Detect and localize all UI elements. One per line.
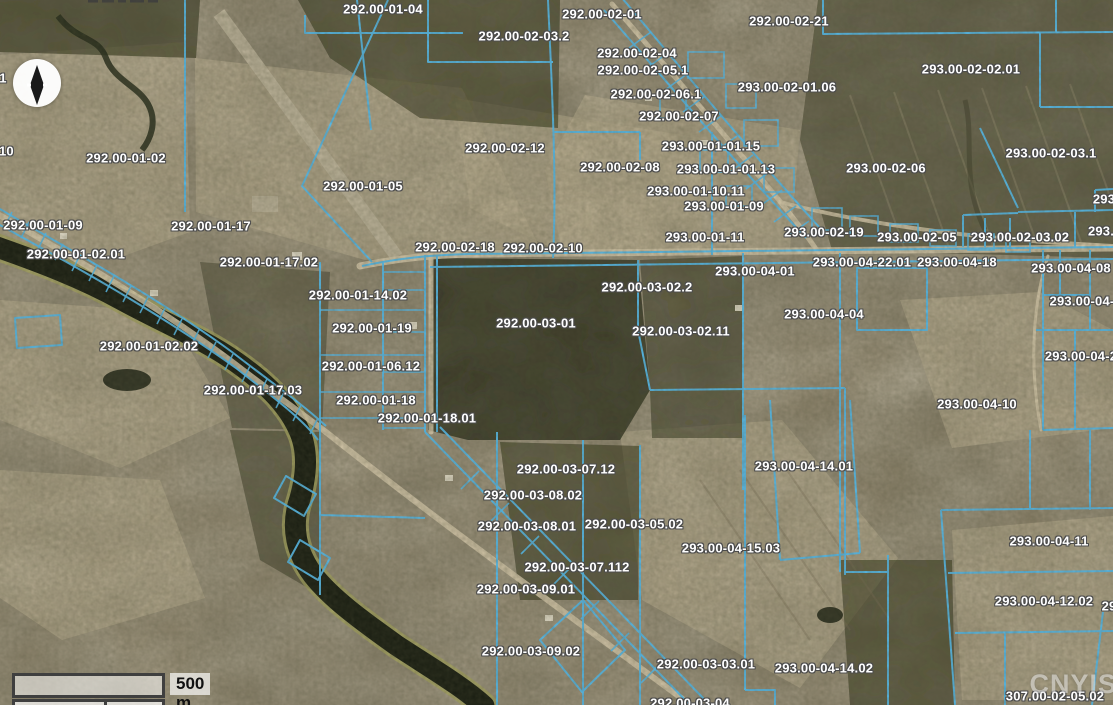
scale-bar-label: 500 m	[170, 673, 210, 695]
cnyis-watermark: CNYIS	[1029, 669, 1113, 700]
scale-bar-secondary	[12, 699, 165, 705]
north-arrow-icon	[13, 59, 61, 107]
map-viewport[interactable]: 292.00-01-04292.00-02-01292.00-02-21292.…	[0, 0, 1113, 705]
north-arrow-control	[13, 59, 61, 107]
scale-bar-rect	[12, 673, 165, 698]
scale-bar: 500 m	[12, 673, 165, 698]
aerial-basemap	[0, 0, 1113, 705]
